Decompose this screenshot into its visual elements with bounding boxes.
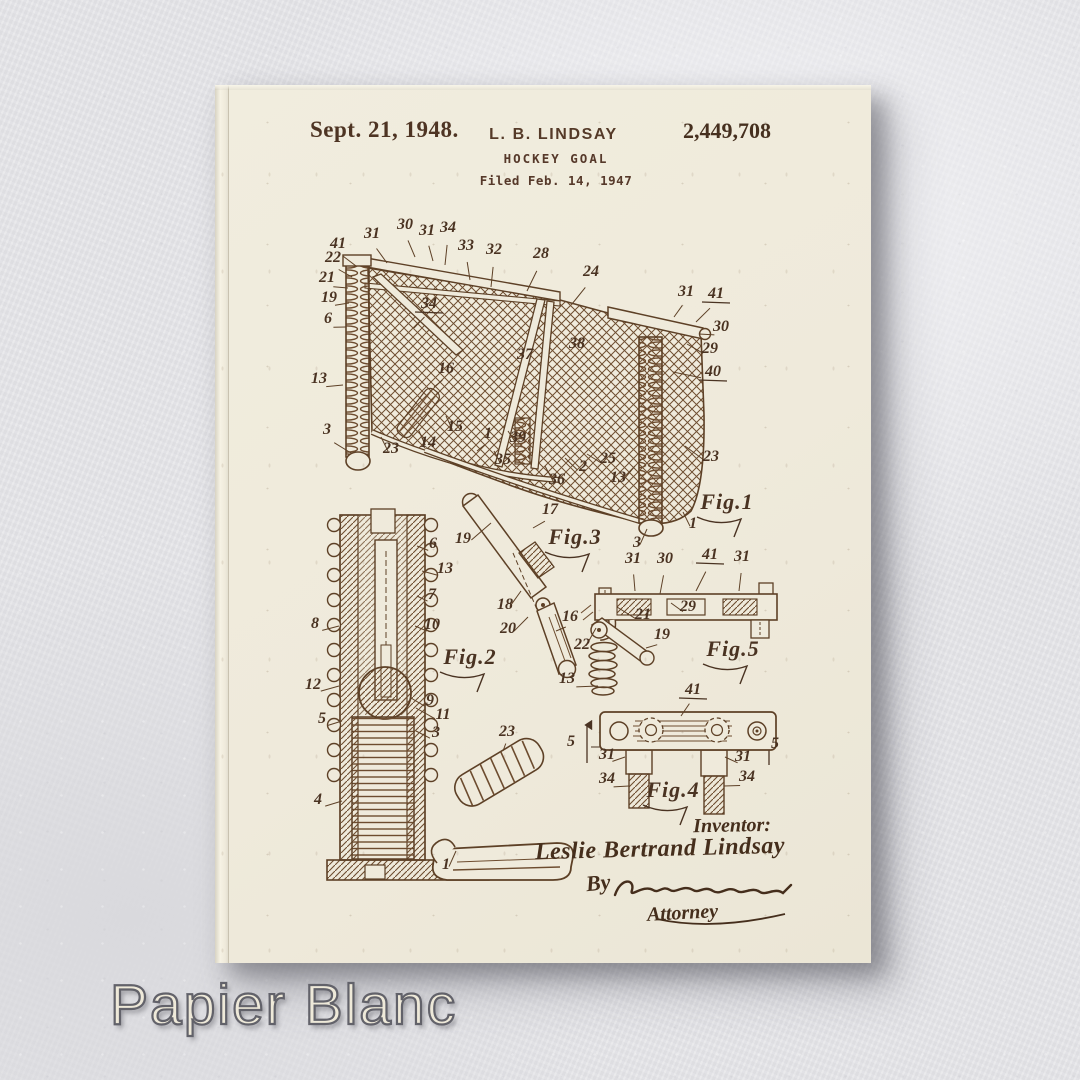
callout-number: 3 — [431, 724, 440, 741]
patent-drawing: 4131303134333228242221196133341637383141… — [215, 85, 871, 963]
callout-number: 16 — [562, 608, 578, 625]
callout-number: 6 — [429, 535, 437, 552]
callout-number: 32 — [485, 241, 502, 258]
callout-number: 31 — [733, 548, 750, 565]
figure-label: Fig.4 — [645, 777, 699, 802]
figure-label: Fig.5 — [705, 636, 759, 661]
callout-number: 21 — [634, 606, 651, 623]
callout-number: 22 — [324, 249, 341, 266]
callout-number: 41 — [684, 681, 701, 698]
figure-label: Fig.1 — [699, 489, 753, 514]
callout-number: 34 — [738, 768, 755, 785]
callout-number: 13 — [559, 670, 575, 687]
callout-number: 38 — [568, 335, 585, 352]
callout-number: 23 — [498, 723, 515, 740]
callout-number: 34 — [420, 295, 437, 312]
callout-number: 5 — [567, 733, 575, 750]
callout-number: 4 — [313, 791, 322, 808]
callout-number: 20 — [499, 620, 516, 637]
callout-number: 24 — [582, 263, 599, 280]
callout-number: 31 — [598, 746, 615, 763]
callout-number: 31 — [677, 283, 694, 300]
callout-number: 12 — [305, 676, 321, 693]
callout-number: 30 — [396, 216, 413, 233]
callout-number: 1 — [689, 515, 697, 532]
callout-number: 23 — [702, 448, 719, 465]
callout-number: 7 — [428, 586, 437, 603]
patent-poster: 4131303134333228242221196133341637383141… — [215, 85, 871, 963]
callout-number: 31 — [363, 225, 380, 242]
callout-number: 29 — [679, 598, 696, 615]
fig1-goal — [343, 255, 711, 536]
callout-number: 3 — [632, 534, 641, 551]
patent-number: 2,449,708 — [683, 118, 771, 144]
patent-inventor-header: L. B. LINDSAY — [471, 126, 636, 144]
callout-number: 5 — [771, 735, 779, 752]
callout-number: 10 — [424, 616, 440, 633]
callout-number: 1 — [442, 856, 450, 873]
callout-number: 19 — [654, 626, 670, 643]
patent-filed-date: Filed Feb. 14, 1947 — [466, 173, 646, 188]
callout-number: 3 — [322, 421, 331, 438]
callout-number: 17 — [542, 501, 559, 518]
callout-number: 13 — [437, 560, 453, 577]
watermark-text: Papier Blanc — [110, 972, 457, 1038]
callout-number: 25 — [599, 450, 616, 467]
callout-number: 41 — [707, 285, 724, 302]
callout-number: 34 — [598, 770, 615, 787]
callout-number: 14 — [420, 434, 436, 451]
attorney-label: Attorney — [646, 900, 718, 927]
patent-title: HOCKEY GOAL — [471, 151, 641, 166]
callout-number: 1 — [484, 425, 492, 442]
callout-number: 36 — [548, 471, 565, 488]
callout-number: 41 — [701, 546, 718, 563]
callout-number: 22 — [573, 636, 590, 653]
callout-number: 6 — [324, 310, 332, 327]
callout-number: 40 — [704, 363, 721, 380]
callout-number: 16 — [438, 360, 454, 377]
callout-number: 31 — [734, 748, 751, 765]
callout-number: 31 — [418, 222, 435, 239]
patent-date: Sept. 21, 1948. — [310, 117, 459, 143]
callout-number: 30 — [656, 550, 673, 567]
callout-number: 19 — [455, 530, 471, 547]
callout-number: 18 — [497, 596, 513, 613]
callout-number: 9 — [426, 692, 434, 709]
callout-number: 37 — [516, 346, 534, 363]
callout-number: 23 — [382, 440, 399, 457]
callout-number: 15 — [447, 418, 463, 435]
callout-number: 8 — [311, 615, 319, 632]
callout-number: 19 — [321, 289, 337, 306]
callout-number: 33 — [457, 237, 474, 254]
callout-number: 29 — [701, 340, 718, 357]
screenshot-root: { "colors":{ "wall":"#e7e7ea", "paper":"… — [0, 0, 1080, 1080]
figure-label: Fig.2 — [442, 644, 496, 669]
callout-number: 11 — [435, 706, 450, 723]
callout-number: 13 — [610, 469, 626, 486]
callout-number: 28 — [532, 245, 549, 262]
callout-number: 34 — [439, 219, 456, 236]
callout-number: 5 — [318, 710, 326, 727]
callout-number: 30 — [712, 318, 729, 335]
callout-number: 2 — [578, 458, 587, 475]
callout-number: 35 — [494, 451, 511, 468]
callout-number: 31 — [624, 550, 641, 567]
callout-number: 21 — [318, 269, 335, 286]
figure-label: Fig.3 — [547, 524, 601, 549]
callout-number: 39 — [509, 429, 526, 446]
callout-number: 13 — [311, 370, 327, 387]
